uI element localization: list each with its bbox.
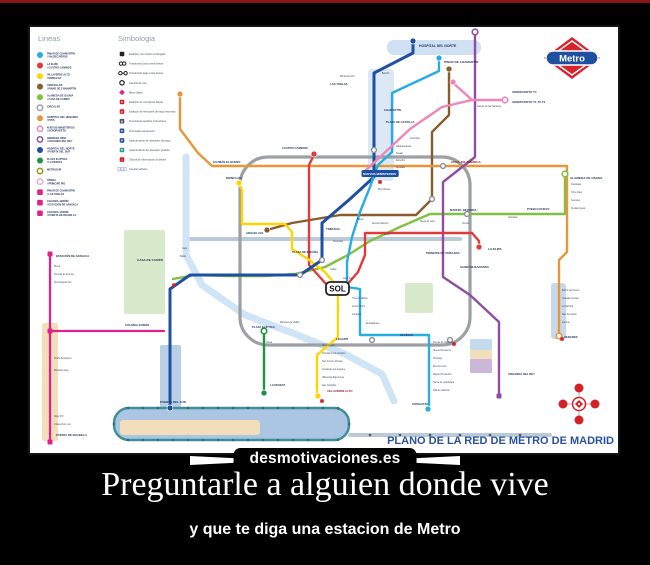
legend-line-label: / PITIS	[47, 119, 55, 122]
legend-symbol-icon	[124, 168, 126, 171]
station-label: VILLAVERDE ALTO	[327, 389, 353, 393]
legend-line-label: / LAS TABLAS	[47, 193, 64, 196]
station-label: PACÍFICO	[400, 332, 414, 337]
minor-station-label: Bilbao	[357, 219, 364, 221]
legend-symbol-glyph: F	[121, 110, 123, 114]
station-label: PINAR DE CHAMARTÍN	[444, 59, 479, 64]
minor-station-label: Lago	[182, 248, 188, 250]
legend-line-label: / MONCLOA	[47, 77, 61, 80]
legend-symbol-label: Cambio de tren	[129, 81, 147, 85]
station-label: ARGANDA DEL REY	[508, 372, 535, 376]
minor-station-label: Estrecho	[396, 159, 406, 162]
legend-symbol-label: Terminal de autobús interurbano	[129, 119, 167, 123]
legend-line-bullet	[37, 52, 43, 58]
station-label: ALAMEDA DE OSUNA	[570, 176, 603, 180]
minor-station-label: Colón	[384, 234, 391, 236]
legend-symbols-list: Estación con horario restringidoTransbor…	[118, 52, 176, 172]
legend-line-label: / PUERTA DE BOADILLA	[47, 214, 76, 217]
metrosur-station-dot	[157, 407, 159, 409]
metrosur-station-dot	[172, 439, 174, 441]
minor-station-label: Diego de León	[420, 221, 436, 223]
small-station-dot	[369, 434, 372, 437]
metrosur-station-dot	[217, 407, 219, 409]
terminus-ring	[502, 97, 508, 103]
minor-station-label: Miguel Hernández	[433, 373, 452, 376]
terminus-dot	[264, 227, 270, 233]
legend-symbol-label: Cambio tarifario	[129, 167, 148, 171]
legend-symbol-icon	[124, 72, 127, 75]
station-label: CHAMARTÍN	[384, 107, 401, 112]
metrosur-station-dot	[337, 439, 339, 441]
metrosur-station-dot	[337, 407, 339, 409]
legend-line-label: / ESTACIÓN DE ARAVACA	[47, 203, 78, 206]
terminus-dot	[311, 151, 317, 157]
metrosur-station-dot	[202, 407, 204, 409]
minor-station-label: Ríos Rosas	[378, 189, 391, 191]
minor-station-label: La Rambla	[562, 306, 574, 308]
map-area	[120, 420, 260, 435]
metrosur-station-dot	[262, 439, 264, 441]
sol-label: SOL	[329, 285, 346, 294]
station-label: PLAZA ELÍPTICA	[252, 324, 275, 329]
station-label: ARGÜELLES	[246, 230, 263, 235]
legend-symbol-icon	[119, 72, 122, 75]
terminus-dot	[425, 406, 431, 412]
minor-station-label: Callao	[330, 269, 337, 271]
watermark-banner: desmotivaciones.es	[234, 448, 417, 472]
minor-station-label: Sierra de Guadalupe	[433, 381, 455, 384]
metrosur-station-dot	[187, 407, 189, 409]
legend-line-bullet	[37, 200, 43, 206]
minor-station-label: Infante Don Luis	[54, 423, 72, 426]
metrosur-station-dot	[232, 407, 234, 409]
station-label: PLAZA DE CASTILLA	[386, 120, 415, 124]
station-label: LEGAZPI	[336, 337, 348, 341]
minor-station-label: Villa de Vallecas	[433, 390, 450, 392]
minor-station-label: Embajadores	[366, 322, 380, 325]
minor-station-label: Tirso de Molina	[352, 297, 368, 300]
metrosur-station-dot	[217, 439, 219, 441]
legend-lines-header: Lineas	[38, 34, 60, 43]
interchange-dot	[372, 148, 377, 153]
metrosur-station-dot	[292, 407, 294, 409]
terminus-dot	[167, 405, 173, 411]
minor-station-label: Batán	[180, 255, 187, 258]
minor-station-label: San Fernando	[562, 313, 577, 316]
minor-station-label: Canillejas	[571, 184, 582, 186]
station-label: CUATRO CAMINOS	[282, 146, 308, 150]
legend-symbol-label: Aparcamiento de disuasión de pago	[129, 138, 171, 142]
metrosur-station-dot	[142, 407, 144, 409]
terminus-dot	[315, 393, 321, 399]
minor-station-label: San Cristóbal	[322, 384, 336, 387]
terminus-dot	[261, 390, 267, 396]
minor-station-label: Tetuán	[396, 152, 404, 155]
legend-line-bullet	[37, 115, 43, 121]
legend-line-label: / PUERTA DEL SUR	[47, 151, 70, 154]
minor-station-label: Jarama	[562, 321, 570, 324]
metrosur-station-dot	[322, 407, 324, 409]
legend-line-label: / AEROPUERTO	[47, 130, 66, 133]
legend-symbol-icon	[121, 168, 123, 171]
compass-point	[575, 384, 584, 393]
map-area	[405, 283, 433, 313]
legend-line-bullet	[37, 210, 43, 216]
minor-station-label: Hospital 12 de Octubre	[322, 352, 346, 355]
legend-line-label: / VALDECARROS	[47, 56, 68, 59]
minor-station-label: Quintana	[508, 216, 518, 219]
terminus-dot	[410, 38, 416, 44]
terminus-ring	[472, 29, 478, 35]
legend-line-bullet	[37, 94, 43, 100]
metro-line	[267, 70, 449, 230]
minor-station-label: Ciudad de los Ángeles	[322, 368, 346, 371]
metrosur-station-dot	[307, 439, 309, 441]
interchange-dot	[320, 258, 325, 263]
legend-symbol-icon	[119, 90, 125, 96]
metrosur-station-dot	[247, 407, 249, 409]
legend-symbol-glyph: P	[121, 139, 123, 143]
metrosur-station-dot	[202, 439, 204, 441]
compass-point	[575, 416, 584, 425]
station-label: SAINZ DE BARANDA	[460, 265, 490, 269]
minor-station-label: Montecarmelo	[340, 75, 355, 78]
minor-station-label: Buenos Aires	[433, 365, 447, 368]
station-label: PLAZA DE ESPAÑA	[292, 249, 318, 254]
map-area	[470, 350, 492, 359]
legend-line-label: / CUATRO CAMINOS	[47, 66, 72, 69]
station-label: AVDA. DE AMÉRICA	[451, 159, 482, 164]
metro-map-svg: HOSPITAL DEL NORTEPINAR DE CHAMARTÍNLAS …	[30, 27, 618, 453]
minor-station-label: Bambú	[382, 73, 390, 75]
minor-station-label: Lavapiés	[352, 314, 362, 316]
cercanias-icon	[378, 180, 382, 184]
minor-station-label: Coslada Central	[562, 297, 579, 300]
interchange-dot	[441, 164, 446, 169]
legend-line-label: / ARGANDA DEL REY	[47, 140, 73, 143]
metro-map-image: HOSPITAL DEL NORTEPINAR DE CHAMARTÍNLAS …	[28, 25, 620, 455]
terminus-dot	[446, 66, 452, 72]
station-label: PUEBLO NUEVO	[527, 207, 550, 211]
legend-line-bullet	[37, 168, 42, 173]
station-label: NUEVOS MINISTERIOS	[363, 172, 396, 176]
minor-station-label: Prado del Espino	[54, 357, 72, 360]
minor-station-label: Alvarado	[396, 166, 406, 169]
station-label: PUERTA DEL SUR	[160, 400, 187, 404]
minor-station-label: Montepríncipe	[54, 369, 69, 372]
compass-center-dot	[578, 403, 580, 405]
station-label: HOSPITAL DEL NORTE	[419, 44, 457, 48]
legend-line-bullet	[37, 137, 42, 142]
metrosur-station-dot	[127, 439, 129, 441]
station-label: HENARES	[564, 335, 578, 339]
legend-symbol-label: Metro ligero	[129, 90, 143, 94]
cercanias-icon	[172, 283, 176, 287]
metrosur-station-dot	[127, 407, 129, 409]
metrosur-station-dot	[142, 439, 144, 441]
sol-station-box: SOL	[326, 282, 349, 295]
minor-station-label: Campo de las Naciones	[477, 106, 502, 108]
metrosur-station-dot	[292, 439, 294, 441]
minor-station-label: Villaverde Bajo-Cruce	[322, 376, 345, 379]
minor-station-label: Avenida de Europa	[54, 273, 74, 276]
metro-logo-text: Metro	[559, 54, 585, 65]
legend-symbol-icon	[123, 62, 126, 65]
map-area	[470, 359, 492, 373]
legend-line-bullet	[37, 158, 43, 164]
terminus-dot	[436, 55, 442, 61]
metrosur-station-dot	[232, 439, 234, 441]
minor-station-label: Suanzes	[571, 200, 581, 202]
station-label: GUZMÁN EL BUENO	[213, 159, 241, 164]
minor-station-label: Nueva Numancia	[433, 350, 451, 352]
metro-line	[453, 83, 472, 100]
meme-poster-page: { "page": { "background": "#000000", "to…	[0, 0, 650, 565]
minor-station-label: Colombia	[410, 138, 420, 140]
map-title: PLANO DE LA RED DE METRO DE MADRID	[387, 435, 614, 447]
metrosur-station-dot	[348, 423, 350, 425]
legend-symbol-icon	[120, 52, 125, 57]
station-label: CONGOSTO	[412, 402, 429, 406]
station-label: MANUEL BECERRA	[450, 208, 477, 212]
legend-line-label: / CASA DE CAMPO	[47, 98, 70, 101]
interchange-dot	[430, 197, 435, 202]
terminus-dot	[450, 79, 456, 85]
station-label: TRIBUNAL	[326, 227, 341, 231]
legend-line-label: / LA PESETA	[47, 161, 62, 164]
terminus-ring	[562, 171, 568, 177]
metrosur-station-dot	[247, 439, 249, 441]
metrosur-station-dot	[277, 439, 279, 441]
legend-lines-list: PINAR DE CHAMARTÍN/ VALDECARROSLA ELIPA/…	[37, 52, 78, 217]
metrosur-station-dot	[113, 423, 115, 425]
legend-symbol-label: Aparcamiento de disuasión gratuito	[129, 148, 170, 152]
top-accent-bar	[0, 0, 650, 3]
station-label: LAS TABLAS	[330, 82, 348, 86]
legend-line-label: CIRCULAR	[47, 105, 60, 108]
station-label: LA PESETA	[270, 383, 285, 387]
terminus-dot	[236, 180, 242, 186]
station-label: PUERTA DE BOADILLA	[56, 433, 87, 437]
metrosur-station-dot	[157, 439, 159, 441]
legend-symbols-header: Simbologia	[118, 34, 156, 43]
station-label: PRÍNCIPE DE VERGARA	[426, 250, 461, 255]
terminus-square	[497, 394, 502, 399]
minor-station-label: Marqués de Vadillo	[280, 321, 300, 324]
minor-station-label: Barrio del Puerto	[562, 289, 580, 292]
caption-subtitle: y que te diga una estacion de Metro	[0, 521, 650, 539]
legend-symbol-glyph: P	[121, 148, 123, 152]
minor-station-label: Torre Arias	[571, 191, 583, 194]
terminus-dot	[476, 244, 482, 250]
legend-symbol-icon	[118, 168, 120, 171]
cercanias-icon	[452, 342, 456, 346]
cercanias-icon	[320, 399, 324, 403]
legend-symbol-icon	[120, 81, 124, 85]
station-label: LA ELIPA	[488, 247, 503, 251]
legend-line-bullet	[37, 189, 43, 195]
minor-station-label: Siglo XXI	[54, 416, 64, 418]
terminus-dot	[177, 91, 183, 97]
metrosur-station-dot	[322, 439, 324, 441]
legend-line-bullet	[37, 179, 42, 184]
minor-station-label: Alonso Martínez	[372, 222, 389, 225]
interchange-dot	[465, 212, 470, 217]
station-label: MONCLOA	[226, 176, 243, 180]
legend-line-bullet	[37, 105, 42, 110]
legend-line-bullet	[37, 73, 43, 79]
interchange-dot	[298, 273, 303, 278]
compass-point	[591, 400, 600, 409]
metrosur-station-dot	[307, 407, 309, 409]
legend-symbol-label: Terminales aeropuerto	[129, 129, 155, 133]
legend-line-bullet	[37, 84, 43, 90]
compass-rose	[559, 384, 600, 425]
minor-station-label: Valdeacederas	[396, 145, 412, 148]
minor-station-label: Noviciado	[333, 241, 344, 243]
station-label: COLONIA JARDÍN	[125, 322, 149, 327]
legend-symbol-label: Oficina de información al cliente	[129, 158, 166, 162]
minor-station-label: Almendrales	[322, 344, 336, 347]
legend-line-label: / PINAR DE CHAMARTÍN	[47, 87, 76, 90]
minor-station-label: Portazgo	[433, 357, 443, 360]
station-label: AEROPUERTO T4	[512, 90, 537, 94]
map-area	[124, 230, 165, 314]
station-label: CASA DE CAMPO	[137, 258, 164, 262]
station-label: AEROPUERTO T1-T2-T3	[512, 100, 546, 104]
minor-station-label: Berna	[54, 265, 61, 268]
terminus-ring	[261, 328, 267, 334]
legend-symbol-label: Transbordo corto entre líneas	[129, 62, 164, 66]
compass-point	[559, 400, 568, 409]
metrosur-station-dot	[277, 407, 279, 409]
metrosur-station-dot	[187, 439, 189, 441]
minor-station-label: Ventas	[462, 222, 470, 225]
watermark-text: desmotivaciones.es	[250, 450, 401, 467]
minor-station-label: San Fermín-Orcasur	[322, 360, 343, 363]
interchange-dot	[370, 338, 375, 343]
legend-symbol-label: Estación de Cercanías-Renfe	[129, 100, 163, 104]
terminus-square	[48, 252, 53, 257]
legend-symbol-label: Estación de ferrocarril de largo recorri…	[129, 110, 176, 114]
metro-logo: Metro	[544, 37, 600, 79]
metro-line	[239, 184, 338, 395]
legend-line-bullet	[37, 126, 42, 131]
minor-station-label: Usera	[266, 341, 273, 344]
station-label: ESTACIÓN DE ARAVACA	[56, 253, 89, 258]
legend-line-bullet	[37, 147, 43, 153]
legend-line-label: METROSUR	[47, 169, 62, 172]
terminus-square	[48, 440, 53, 445]
minor-station-label: Ciudad Lineal	[571, 208, 586, 210]
map-area	[470, 339, 492, 350]
minor-station-label: Antón Martín	[352, 305, 366, 308]
minor-station-label: Puente de Vallecas	[433, 341, 453, 344]
minor-station-label: Somosaguas Sur	[54, 281, 72, 284]
metrosur-station-dot	[262, 407, 264, 409]
minor-station-label: Gran Vía	[343, 277, 353, 280]
metro-line	[186, 157, 394, 401]
terminus-square	[48, 329, 53, 334]
legend-symbol-label: Estación con horario restringido	[129, 52, 166, 56]
legend-symbol-label: Transbordo largo entre líneas	[129, 71, 164, 75]
legend-line-bullet	[37, 63, 43, 69]
legend-line-label: / PRÍNCIPE PÍO	[47, 182, 65, 185]
